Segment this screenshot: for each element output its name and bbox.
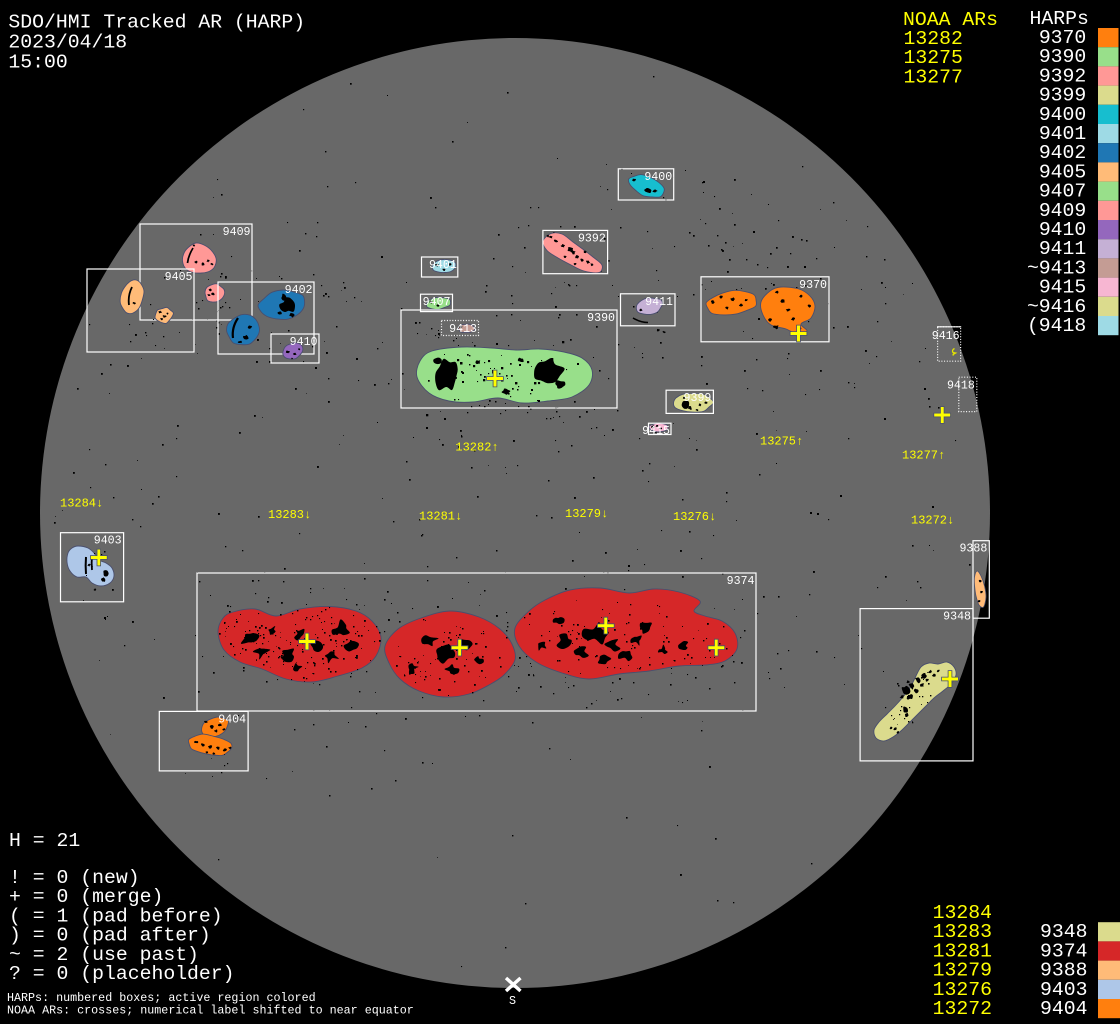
svg-text:9413: 9413 [449, 323, 477, 336]
svg-text:13277↑: 13277↑ [902, 449, 945, 463]
svg-text:9370: 9370 [799, 279, 827, 292]
svg-text:9415: 9415 [642, 425, 670, 438]
svg-text:9405: 9405 [165, 271, 193, 284]
svg-text:9404: 9404 [1040, 998, 1087, 1020]
svg-text:(9418: (9418 [1027, 315, 1086, 337]
svg-text:9388: 9388 [959, 543, 987, 556]
svg-text:9401: 9401 [429, 259, 457, 272]
svg-text:9399: 9399 [684, 392, 712, 405]
svg-text:9348: 9348 [943, 611, 971, 624]
svg-text:9400: 9400 [644, 171, 672, 184]
svg-text:13275↑: 13275↑ [760, 435, 803, 449]
svg-text:9404: 9404 [218, 713, 246, 726]
svg-text:9403: 9403 [94, 535, 122, 548]
svg-text:2023/04/18: 2023/04/18 [8, 32, 127, 54]
svg-text:15:00: 15:00 [8, 52, 67, 74]
svg-text:9392: 9392 [578, 232, 606, 245]
svg-text:9418: 9418 [947, 380, 975, 393]
svg-text:9416: 9416 [932, 330, 960, 343]
svg-text:13279↓: 13279↓ [565, 507, 608, 521]
svg-text:9409: 9409 [223, 226, 251, 239]
svg-text:9410: 9410 [290, 336, 318, 349]
svg-text:13272↓: 13272↓ [911, 514, 954, 528]
svg-text:9402: 9402 [285, 284, 313, 297]
svg-text:9374: 9374 [727, 575, 755, 588]
svg-text:9411: 9411 [645, 296, 673, 309]
svg-text:9390: 9390 [587, 312, 615, 325]
svg-text:13283↓: 13283↓ [268, 508, 311, 522]
svg-text:13284↓: 13284↓ [60, 496, 103, 510]
svg-text:NOAA ARs: crosses; numerical l: NOAA ARs: crosses; numerical label shift… [7, 1004, 414, 1018]
svg-text:13282↑: 13282↑ [455, 441, 498, 455]
svg-text:13276↓: 13276↓ [673, 510, 716, 524]
svg-text:? = 0 (placeholder): ? = 0 (placeholder) [9, 963, 235, 985]
svg-text:13281↓: 13281↓ [419, 510, 462, 524]
svg-text:13272: 13272 [933, 998, 992, 1020]
svg-text:9407: 9407 [423, 296, 451, 309]
svg-text:13277: 13277 [904, 66, 963, 88]
svg-text:H = 21: H = 21 [9, 830, 80, 852]
svg-text:S: S [509, 994, 516, 1008]
svg-text:SDO/HMI Tracked AR (HARP): SDO/HMI Tracked AR (HARP) [8, 12, 305, 34]
